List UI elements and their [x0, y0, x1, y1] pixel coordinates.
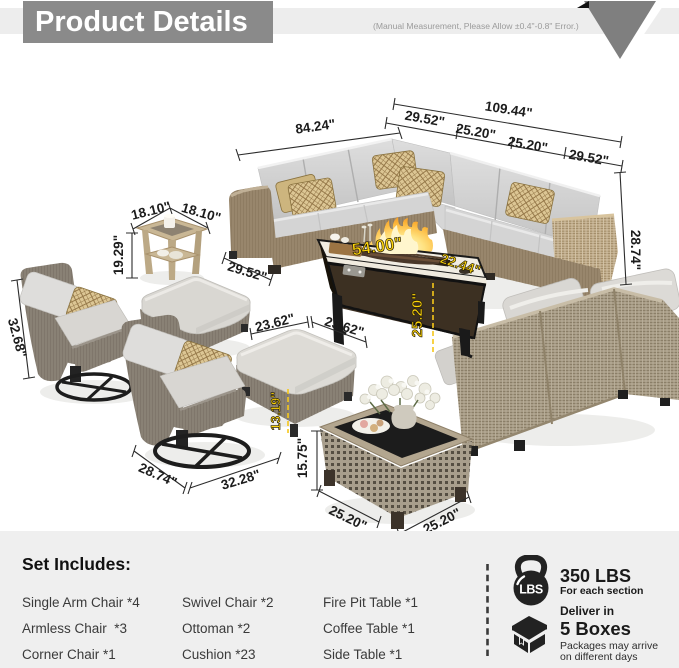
svg-text:15.75": 15.75" [295, 438, 310, 478]
svg-text:18.10": 18.10" [180, 200, 223, 225]
svg-text:19.29": 19.29" [111, 235, 126, 275]
svg-text:23.62": 23.62" [323, 314, 366, 340]
svg-text:32.68": 32.68" [5, 316, 30, 359]
svg-text:13.19": 13.19" [268, 392, 283, 431]
svg-text:25.20": 25.20" [507, 134, 549, 156]
svg-text:29.52": 29.52" [226, 259, 269, 285]
svg-text:29.52": 29.52" [404, 108, 446, 130]
svg-text:84.24": 84.24" [294, 116, 336, 136]
svg-text:109.44": 109.44" [484, 98, 533, 120]
svg-text:25.20": 25.20" [455, 121, 497, 143]
svg-text:LBS: LBS [519, 583, 543, 597]
svg-text:25.20": 25.20" [409, 293, 426, 338]
svg-text:28.74": 28.74" [628, 230, 643, 270]
svg-text:29.52": 29.52" [568, 147, 610, 169]
